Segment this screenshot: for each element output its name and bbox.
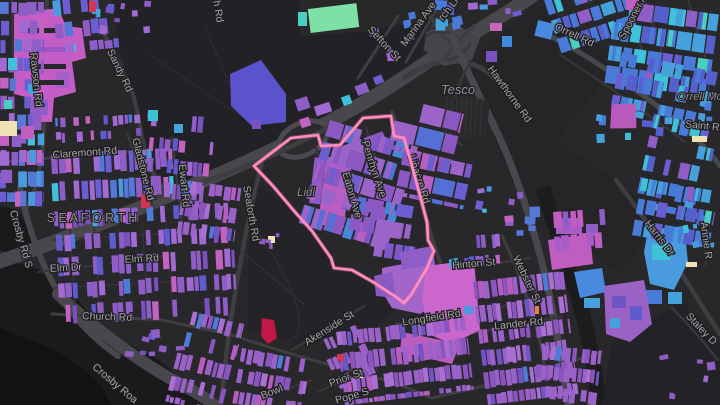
svg-text:Tesco: Tesco [441,82,475,97]
svg-text:Church Rd: Church Rd [82,310,133,324]
svg-text:Elm Rd: Elm Rd [124,252,159,266]
svg-text:Lidl: Lidl [297,187,315,199]
svg-text:S E A F O R T H: S E A F O R T H [47,211,138,225]
svg-text:Orrell Mo: Orrell Mo [677,91,720,103]
svg-text:Elm Dr: Elm Dr [50,261,83,275]
